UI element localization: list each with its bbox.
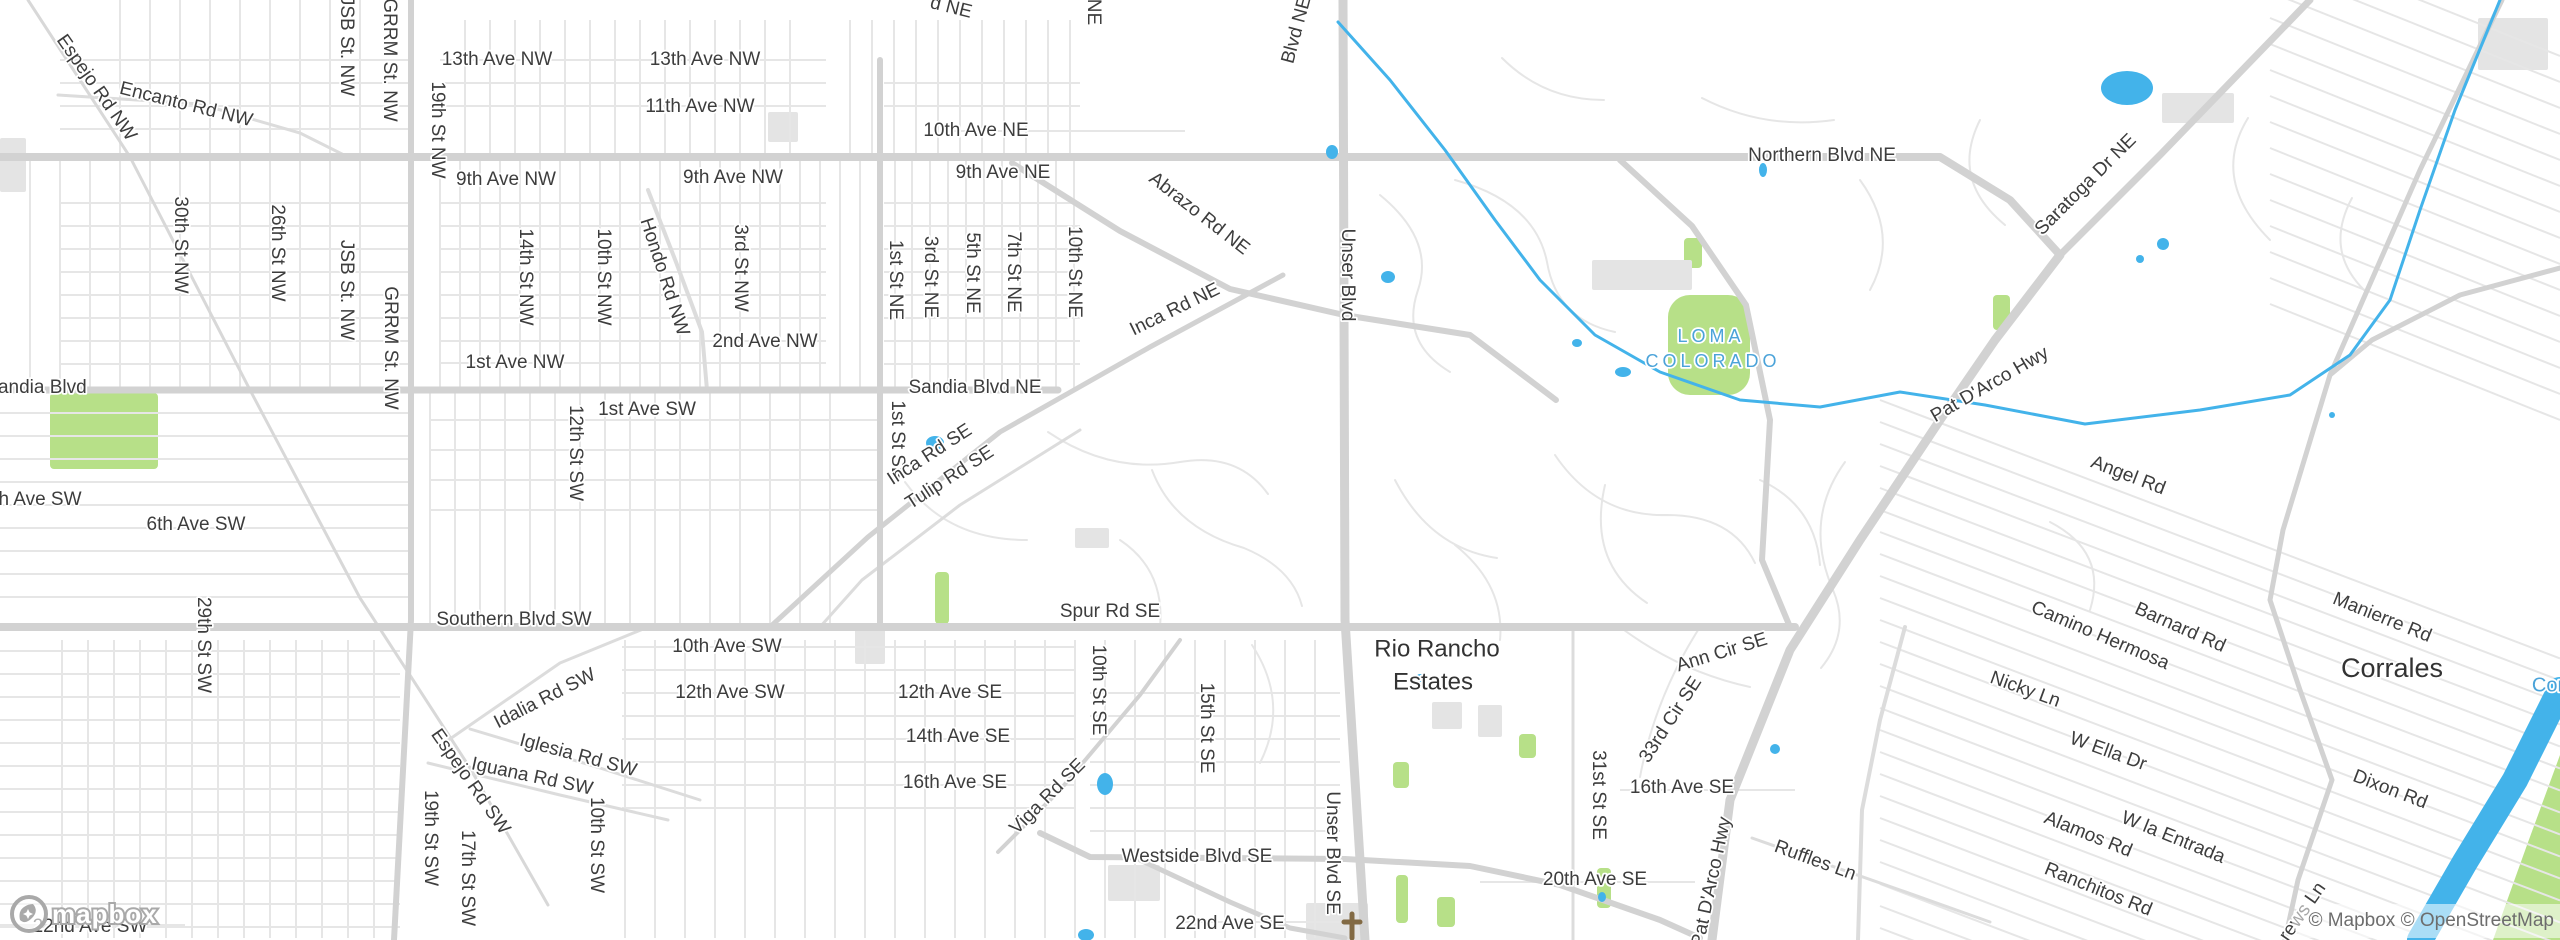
- building: [768, 112, 798, 142]
- map-label: Southern Blvd SW: [436, 609, 591, 630]
- map-label: 13th Ave NW: [442, 49, 553, 70]
- map-label: 6th Ave SW: [147, 514, 246, 535]
- map-label: 2nd Ave NW: [712, 331, 817, 352]
- map-label: GRRM St. NW: [380, 286, 401, 410]
- map-label: 10th St NW: [593, 228, 614, 325]
- pond: [1326, 145, 1338, 159]
- pond: [1598, 892, 1606, 902]
- map-label: NE: [1083, 0, 1104, 25]
- pond: [2101, 71, 2153, 105]
- map-page: { "meta": { "app": "Mapbox map viewer", …: [0, 0, 2560, 940]
- map-label: Spur Rd SE: [1060, 601, 1160, 622]
- map-label: 20th Ave SE: [1543, 869, 1647, 890]
- mapbox-logo-text: mapbox: [52, 899, 158, 929]
- map-label: Westside Blvd SE: [1122, 846, 1273, 867]
- map-label: 30th St NW: [170, 196, 191, 293]
- pond: [1381, 271, 1395, 283]
- map-label: 12th Ave SW: [675, 682, 785, 703]
- map-label: 7th St NE: [1003, 231, 1024, 312]
- map-label: 14th Ave SE: [906, 726, 1010, 747]
- map-label: 10th Ave SW: [672, 636, 782, 657]
- map-label: 9th Ave NW: [456, 169, 556, 190]
- map-canvas[interactable]: Espejo Rd NWEncanto Rd NWJSB St. NWGRRM …: [0, 0, 2560, 940]
- map-label: 12th St SW: [565, 405, 586, 501]
- map-label: JSB St. NW: [336, 240, 357, 340]
- map-label: JSB St. NW: [336, 0, 357, 96]
- map-label: 3rd St NW: [730, 224, 751, 312]
- building: [1478, 705, 1502, 737]
- park-area: [1519, 734, 1536, 758]
- map-label: 26th St NW: [267, 204, 288, 301]
- map-label: 31st St SE: [1588, 750, 1609, 840]
- map-label: 1st St NE: [885, 240, 906, 320]
- map-label: 3rd St NE: [920, 236, 941, 318]
- map-label: 9th Ave NE: [956, 162, 1051, 183]
- map-label: 22nd Ave SE: [1175, 913, 1285, 934]
- map-label: Unser Blvd SE: [1322, 791, 1343, 915]
- map-label: 19th St NW: [427, 81, 448, 178]
- park-area: [1393, 762, 1409, 788]
- map-label: Sandia Blvd: [0, 377, 87, 398]
- map-label: 15th St SE: [1196, 683, 1217, 774]
- pond: [1572, 339, 1582, 347]
- map-label: COLORADO: [1645, 351, 1780, 371]
- map-label: Sandia Blvd NE: [908, 377, 1041, 398]
- map-label: 9th Ave NW: [683, 167, 783, 188]
- building: [0, 138, 26, 192]
- park-area: [50, 393, 158, 469]
- pond: [1615, 367, 1631, 377]
- pond: [1770, 744, 1780, 754]
- map-label: 5th St NE: [962, 232, 983, 313]
- map-label: 16th Ave SE: [903, 772, 1007, 793]
- map-label: 16th Ave SE: [1630, 777, 1734, 798]
- pond: [2157, 238, 2169, 250]
- building: [1432, 702, 1462, 729]
- park-area: [1396, 875, 1408, 923]
- map-label: 29th St SW: [193, 597, 214, 693]
- map-label: Estates: [1393, 668, 1473, 695]
- pond: [2329, 412, 2335, 418]
- map-label: 19th St SW: [420, 790, 441, 886]
- park-area: [935, 572, 949, 624]
- map-label: GRRM St. NW: [379, 0, 400, 122]
- map-attribution[interactable]: © Mapbox © OpenStreetMap: [2292, 904, 2560, 938]
- map-label: LOMA: [1677, 326, 1744, 346]
- park-area: [1437, 897, 1455, 927]
- mapbox-logo[interactable]: mapbox: [8, 892, 188, 936]
- map-label: h Ave SW: [0, 489, 82, 510]
- building: [1075, 528, 1109, 548]
- pond: [2136, 255, 2144, 263]
- map-label: Corrales: [2341, 653, 2443, 683]
- map-label: Cor: [2532, 674, 2560, 696]
- map-label: 10th Ave NE: [923, 120, 1028, 141]
- map-label: 1st Ave NW: [466, 352, 565, 373]
- map-label: 12th Ave SE: [898, 682, 1002, 703]
- map-label: 11th Ave NW: [645, 96, 754, 117]
- map-label: Rio Rancho: [1374, 635, 1499, 662]
- map-label: Unser Blvd: [1337, 229, 1358, 322]
- map-label: 10th St SW: [586, 797, 607, 893]
- map-label: Northern Blvd NE: [1748, 145, 1896, 166]
- map-label: 14th St NW: [515, 228, 536, 325]
- map-label: 1st Ave SW: [598, 399, 696, 420]
- map-label: 10th St NE: [1064, 226, 1085, 318]
- building: [1592, 260, 1692, 290]
- map-label: 13th Ave NW: [650, 49, 761, 70]
- map-label: 17th St SW: [457, 830, 478, 926]
- pond: [1097, 773, 1113, 795]
- map-label: 10th St SE: [1088, 645, 1109, 736]
- mapbox-logo-mark: [12, 897, 46, 931]
